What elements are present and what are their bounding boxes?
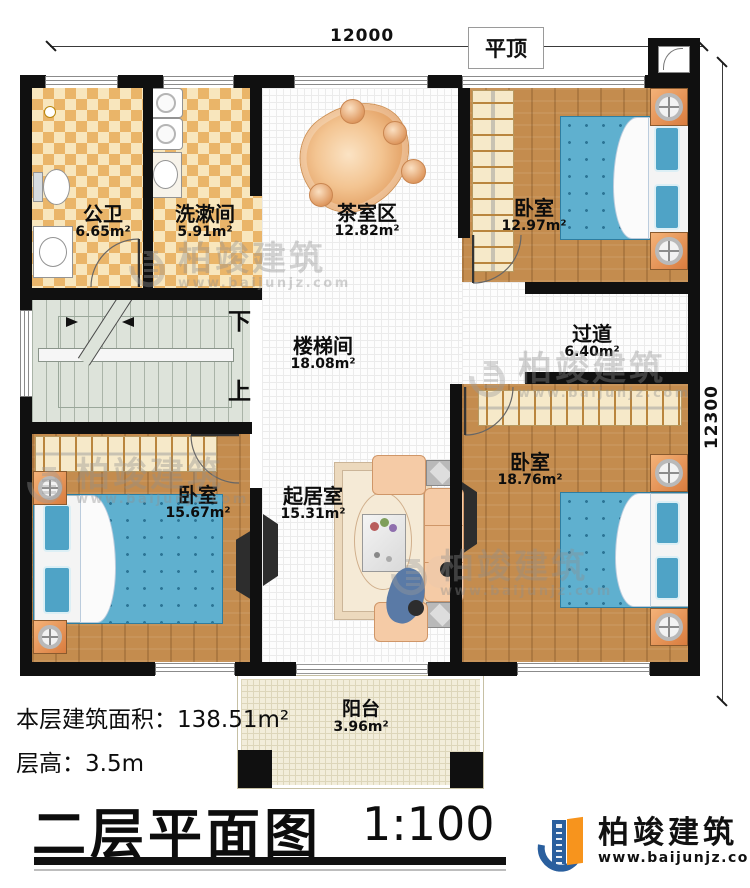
room-label-livingroom: 起居室 15.31m² bbox=[258, 486, 368, 522]
room-label-bedroom-bottomleft: 卧室 15.67m² bbox=[143, 485, 253, 521]
chimney-flue bbox=[658, 46, 690, 73]
room-name: 楼梯间 bbox=[268, 336, 378, 357]
pillow bbox=[654, 184, 680, 230]
room-name: 卧室 bbox=[475, 452, 585, 473]
brand-logo: 柏竣建筑 www.baijunjz.com bbox=[540, 816, 750, 874]
stair-direction-arrow bbox=[122, 317, 134, 327]
room-area: 3.96m² bbox=[306, 720, 416, 735]
tv bbox=[462, 482, 477, 554]
brand-website: www.baijunjz.com bbox=[598, 850, 750, 866]
logo-building-orange bbox=[567, 817, 583, 865]
stair-direction-arrow bbox=[66, 317, 78, 327]
toilet-bowl bbox=[43, 169, 70, 205]
washing-machine bbox=[149, 118, 183, 150]
tea-stool bbox=[401, 159, 426, 184]
door-bedroom-topright bbox=[472, 234, 522, 284]
title-underline-thin bbox=[34, 869, 506, 871]
pillow bbox=[655, 556, 680, 600]
pillow bbox=[655, 501, 680, 545]
nightstand bbox=[650, 88, 688, 126]
wall bbox=[20, 422, 252, 434]
brand-logo-icon bbox=[540, 816, 590, 874]
pillow bbox=[654, 126, 680, 172]
wall bbox=[458, 88, 470, 238]
room-name: 洗漱间 bbox=[150, 204, 260, 225]
nightstand bbox=[650, 454, 688, 492]
door-bathroom bbox=[90, 238, 140, 288]
shower-head-icon bbox=[44, 106, 56, 118]
window bbox=[20, 310, 32, 397]
wall bbox=[20, 75, 32, 310]
balcony-pillar bbox=[238, 750, 272, 788]
nightstand bbox=[33, 471, 67, 505]
room-label-bathroom: 公卫 6.65m² bbox=[48, 204, 158, 240]
bed-sheet bbox=[80, 495, 116, 623]
room-area: 6.40m² bbox=[537, 345, 647, 360]
bed bbox=[560, 492, 692, 608]
window bbox=[163, 76, 234, 88]
wall bbox=[525, 282, 700, 294]
brand-name: 柏竣建筑 bbox=[598, 816, 750, 850]
balcony-sliding-door bbox=[296, 664, 428, 674]
bed-headboard bbox=[647, 117, 691, 239]
floor-plan-canvas: 12000 平顶 12300 下 上 bbox=[0, 0, 750, 888]
window bbox=[45, 76, 118, 88]
logo-building-blue bbox=[552, 820, 566, 864]
tv bbox=[263, 514, 278, 586]
room-name: 公卫 bbox=[48, 204, 158, 225]
nightstand bbox=[650, 608, 688, 646]
top-dimension-line bbox=[50, 46, 704, 47]
flat-roof-label: 平顶 bbox=[485, 33, 527, 63]
room-label-hallway: 过道 6.40m² bbox=[537, 324, 647, 360]
room-name: 卧室 bbox=[479, 198, 589, 219]
wall bbox=[234, 75, 294, 88]
wall bbox=[250, 88, 262, 196]
wall bbox=[428, 662, 517, 676]
room-name: 卧室 bbox=[143, 485, 253, 506]
table-decor bbox=[386, 556, 392, 562]
room-area: 6.65m² bbox=[48, 225, 158, 240]
pillow bbox=[43, 566, 71, 614]
floor-height-text: 层高：3.5m bbox=[16, 744, 144, 778]
washroom-sink-basin bbox=[153, 160, 178, 189]
flower-decor bbox=[370, 522, 379, 531]
wall bbox=[118, 75, 163, 88]
wall bbox=[20, 288, 262, 300]
room-area: 12.82m² bbox=[312, 224, 422, 239]
bathroom-sink-basin bbox=[39, 237, 67, 267]
armchair bbox=[372, 455, 426, 495]
wall bbox=[525, 372, 700, 384]
room-area: 15.67m² bbox=[143, 506, 253, 521]
floor-area-text: 本层建筑面积：138.51m² bbox=[16, 700, 289, 734]
top-dimension-label: 12000 bbox=[330, 26, 394, 46]
nightstand bbox=[33, 620, 67, 654]
room-label-tearoom: 茶室区 12.82m² bbox=[312, 203, 422, 239]
room-name: 茶室区 bbox=[312, 203, 422, 224]
lamp-icon bbox=[655, 459, 683, 487]
wall bbox=[20, 662, 155, 676]
room-label-washroom: 洗漱间 5.91m² bbox=[150, 204, 260, 240]
tea-stool bbox=[383, 121, 407, 145]
wall bbox=[235, 662, 296, 676]
lamp-icon bbox=[655, 93, 683, 121]
room-label-balcony: 阳台 3.96m² bbox=[306, 700, 416, 735]
lamp-icon bbox=[655, 237, 683, 265]
washer-drum bbox=[156, 93, 176, 113]
nightstand bbox=[650, 232, 688, 270]
drawing-scale: 1:100 bbox=[362, 797, 495, 851]
window bbox=[155, 663, 235, 675]
lamp-icon bbox=[38, 625, 62, 649]
washing-machine bbox=[149, 88, 183, 118]
room-area: 18.76m² bbox=[475, 473, 585, 488]
wall bbox=[650, 662, 700, 676]
wall bbox=[428, 75, 462, 88]
pillow bbox=[43, 504, 71, 552]
bed-headboard bbox=[649, 493, 691, 607]
right-dimension-line bbox=[722, 62, 723, 702]
bed-sheet bbox=[613, 117, 649, 239]
table-decor bbox=[374, 552, 380, 558]
washer-drum bbox=[156, 124, 176, 144]
flower-decor bbox=[380, 518, 389, 527]
chimney-curve bbox=[663, 48, 683, 70]
person-head bbox=[408, 600, 424, 616]
flat-roof-label-box: 平顶 bbox=[468, 27, 544, 69]
flower-decor bbox=[389, 524, 397, 532]
room-label-bedroom-topright: 卧室 12.97m² bbox=[479, 198, 589, 234]
tea-stool bbox=[340, 99, 365, 124]
bed-headboard bbox=[34, 495, 82, 623]
window bbox=[294, 76, 428, 88]
stair-up-label: 上 bbox=[228, 372, 251, 406]
room-name: 起居室 bbox=[258, 486, 368, 507]
room-area: 15.31m² bbox=[258, 507, 368, 522]
window bbox=[517, 663, 650, 675]
door-bedroom-bottomright bbox=[464, 386, 514, 436]
bed-sheet bbox=[615, 493, 651, 607]
toilet-tank bbox=[33, 172, 43, 202]
room-name: 过道 bbox=[537, 324, 647, 345]
room-area: 18.08m² bbox=[268, 357, 378, 372]
stair-down-label: 下 bbox=[228, 302, 251, 336]
lamp-icon bbox=[38, 476, 62, 500]
right-dimension-label: 12300 bbox=[702, 385, 722, 449]
wall bbox=[450, 384, 462, 662]
room-label-bedroom-bottomright: 卧室 18.76m² bbox=[475, 452, 585, 488]
room-area: 5.91m² bbox=[150, 225, 260, 240]
room-label-stairwell: 楼梯间 18.08m² bbox=[268, 336, 378, 372]
wall bbox=[20, 397, 32, 676]
door-bedroom-bottomleft bbox=[190, 434, 240, 484]
window bbox=[462, 76, 645, 88]
balcony-pillar bbox=[450, 752, 483, 788]
room-name: 阳台 bbox=[306, 700, 416, 720]
stair-landing-rail bbox=[38, 348, 234, 362]
wall bbox=[143, 88, 153, 298]
lamp-icon bbox=[655, 613, 683, 641]
title-underline bbox=[34, 857, 506, 865]
room-area: 12.97m² bbox=[479, 219, 589, 234]
